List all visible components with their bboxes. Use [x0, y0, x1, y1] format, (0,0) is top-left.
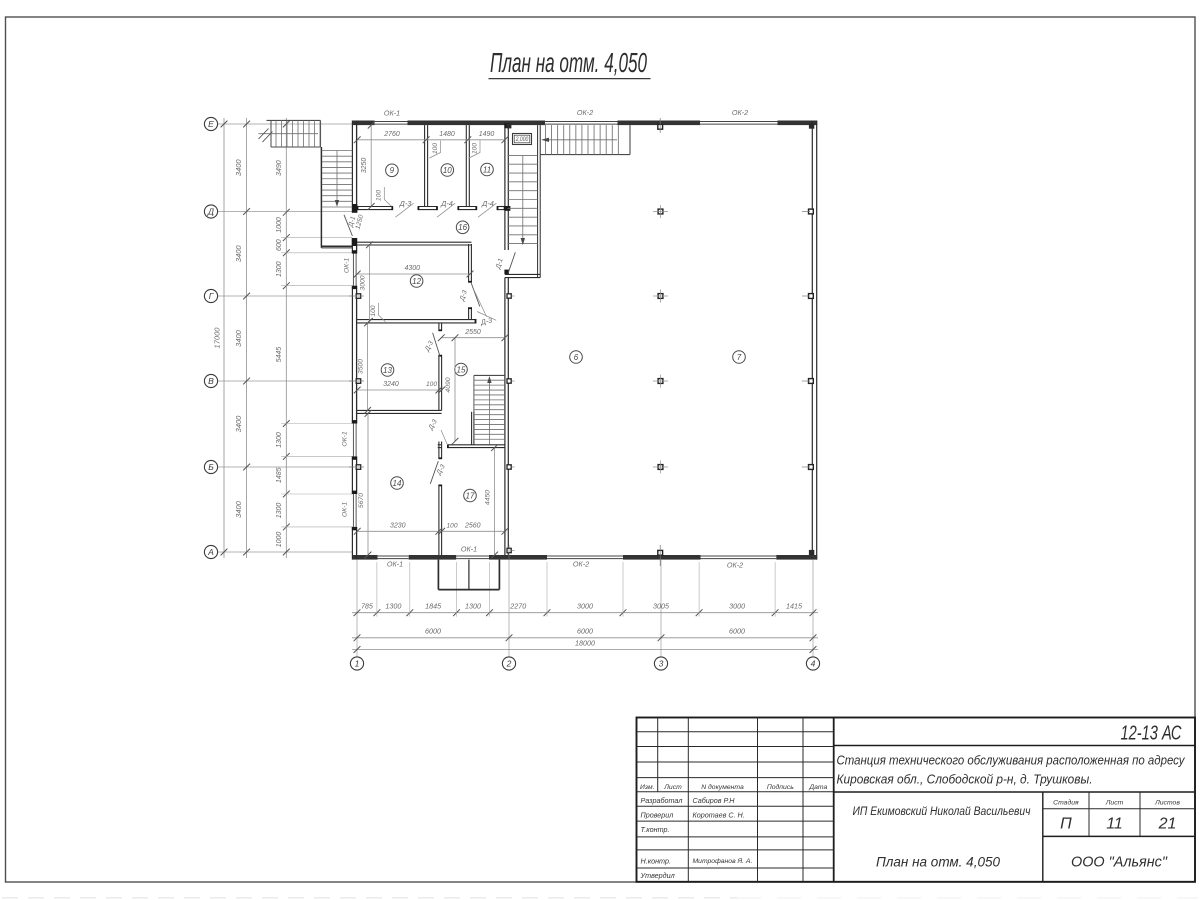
svg-text:В: В	[208, 376, 214, 386]
svg-text:100: 100	[446, 523, 457, 530]
svg-text:6000: 6000	[577, 627, 593, 636]
svg-text:1: 1	[355, 659, 360, 669]
svg-text:Коротаев С. Н.: Коротаев С. Н.	[693, 811, 745, 820]
svg-text:3240: 3240	[383, 381, 399, 388]
svg-text:3000: 3000	[359, 275, 366, 290]
svg-text:3400: 3400	[234, 329, 243, 347]
svg-text:2760: 2760	[383, 131, 400, 138]
svg-text:3000: 3000	[577, 602, 593, 611]
svg-text:3230: 3230	[390, 523, 406, 530]
svg-text:2270: 2270	[509, 602, 526, 611]
svg-text:1490: 1490	[479, 131, 495, 138]
svg-text:15: 15	[457, 365, 466, 374]
svg-text:11: 11	[483, 165, 491, 174]
svg-text:ОК-1: ОК-1	[342, 502, 349, 518]
svg-text:Д-3: Д-3	[399, 199, 413, 208]
svg-text:Лист: Лист	[663, 784, 682, 791]
svg-text:12: 12	[412, 277, 421, 286]
svg-text:5445: 5445	[276, 347, 283, 363]
svg-text:Разработал: Разработал	[641, 796, 683, 805]
svg-text:Митрофанов Я. А.: Митрофанов Я. А.	[693, 858, 753, 865]
svg-text:ОК-1: ОК-1	[342, 431, 349, 447]
svg-text:Лист: Лист	[1105, 800, 1124, 807]
svg-text:ООО "Альянс": ООО "Альянс"	[1071, 854, 1168, 871]
svg-text:3250: 3250	[361, 158, 368, 174]
svg-text:1485: 1485	[276, 467, 283, 483]
svg-text:6000: 6000	[729, 627, 745, 636]
svg-text:785: 785	[361, 602, 374, 611]
svg-text:100: 100	[426, 381, 437, 388]
svg-text:11: 11	[1106, 816, 1123, 833]
svg-text:6000: 6000	[425, 627, 441, 636]
svg-text:13: 13	[383, 366, 392, 375]
svg-text:2: 2	[506, 659, 512, 669]
svg-text:4090: 4090	[445, 377, 452, 392]
svg-text:Листов: Листов	[1154, 800, 1180, 807]
svg-text:ОК-1: ОК-1	[461, 545, 477, 554]
svg-text:Утвердил: Утвердил	[640, 871, 675, 880]
svg-text:4300: 4300	[405, 265, 421, 272]
svg-text:2550: 2550	[464, 329, 481, 336]
svg-text:Изм.: Изм.	[640, 784, 655, 791]
svg-text:ОК-1: ОК-1	[384, 109, 400, 118]
svg-text:1845: 1845	[425, 602, 442, 611]
svg-text:ОК-2: ОК-2	[573, 560, 589, 569]
svg-text:1300: 1300	[276, 432, 283, 448]
svg-text:Станция технического обслужива: Станция технического обслуживания распол…	[837, 753, 1186, 768]
svg-text:3400: 3400	[234, 415, 243, 433]
svg-text:Дата: Дата	[808, 784, 827, 791]
svg-text:100: 100	[376, 190, 383, 201]
svg-text:4: 4	[811, 659, 816, 669]
svg-text:N документа: N документа	[701, 783, 744, 791]
svg-text:1300: 1300	[385, 602, 401, 611]
svg-text:ИП Екимовский Николай Васильев: ИП Екимовский Николай Васильевич	[853, 804, 1032, 818]
svg-text:1000: 1000	[276, 532, 283, 548]
svg-text:3400: 3400	[234, 245, 243, 263]
svg-text:Е: Е	[208, 119, 214, 129]
svg-text:ОК-2: ОК-2	[577, 108, 593, 117]
svg-text:17000: 17000	[213, 327, 222, 349]
svg-text:1480: 1480	[439, 131, 455, 138]
svg-text:1000: 1000	[276, 217, 283, 233]
svg-text:ОК-2: ОК-2	[727, 561, 743, 570]
svg-text:21: 21	[1158, 816, 1177, 833]
svg-text:3490: 3490	[276, 160, 283, 176]
svg-text:100: 100	[472, 143, 479, 154]
svg-text:4450: 4450	[485, 490, 492, 505]
svg-text:А: А	[207, 547, 214, 557]
svg-text:1300: 1300	[276, 261, 283, 277]
svg-text:Подпись: Подпись	[767, 783, 794, 791]
svg-text:Т.контр.: Т.контр.	[641, 825, 670, 834]
svg-text:Б: Б	[208, 462, 214, 472]
svg-text:100: 100	[370, 305, 377, 316]
svg-text:2,000: 2,000	[515, 136, 529, 143]
svg-text:16: 16	[458, 223, 467, 232]
svg-text:7: 7	[737, 353, 742, 362]
svg-text:Проверил: Проверил	[641, 811, 674, 820]
svg-text:1300: 1300	[276, 503, 283, 519]
svg-text:1415: 1415	[786, 602, 803, 611]
svg-text:18000: 18000	[575, 639, 595, 648]
svg-text:3500: 3500	[358, 359, 365, 374]
svg-text:2560: 2560	[464, 523, 481, 530]
svg-text:12-13 АС: 12-13 АС	[1121, 723, 1182, 745]
svg-text:План на отм. 4,050: План на отм. 4,050	[490, 47, 647, 78]
svg-text:3005: 3005	[653, 602, 670, 611]
svg-text:Кировская обл., Слободской р-н: Кировская обл., Слободской р-н, д. Трушк…	[837, 772, 1093, 787]
svg-text:3: 3	[659, 659, 664, 669]
svg-text:17: 17	[466, 491, 475, 500]
svg-text:10: 10	[443, 166, 452, 175]
svg-text:3400: 3400	[234, 500, 243, 518]
svg-text:14: 14	[393, 479, 402, 488]
svg-text:Стадия: Стадия	[1053, 799, 1079, 807]
svg-text:100: 100	[432, 143, 439, 154]
svg-text:9: 9	[390, 166, 395, 175]
svg-text:600: 600	[276, 239, 283, 251]
svg-text:Н.контр.: Н.контр.	[641, 857, 671, 866]
svg-text:5670: 5670	[358, 493, 365, 508]
svg-text:Д: Д	[207, 207, 214, 217]
svg-text:План на отм. 4,050: План на отм. 4,050	[876, 855, 1000, 871]
svg-text:3400: 3400	[234, 159, 243, 177]
svg-text:ОК-1: ОК-1	[343, 258, 350, 274]
svg-text:6: 6	[574, 353, 579, 362]
svg-text:ОК-2: ОК-2	[732, 108, 748, 117]
svg-text:Сабиров Р.Н: Сабиров Р.Н	[693, 796, 736, 805]
svg-text:ОК-1: ОК-1	[387, 560, 403, 569]
svg-text:3000: 3000	[729, 602, 745, 611]
svg-text:1300: 1300	[465, 602, 481, 611]
svg-text:П: П	[1060, 816, 1072, 833]
